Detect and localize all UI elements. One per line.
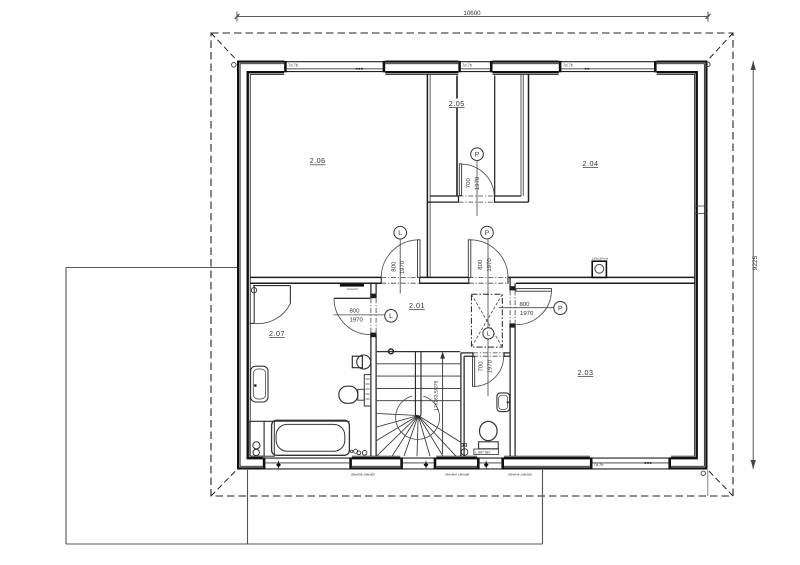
svg-text:L: L bbox=[398, 230, 402, 237]
svg-text:700: 700 bbox=[478, 361, 485, 372]
svg-text:7d.7b: 7d.7b bbox=[563, 62, 574, 67]
svg-text:800: 800 bbox=[391, 261, 398, 272]
svg-text:L: L bbox=[389, 313, 393, 320]
svg-text:800: 800 bbox=[520, 301, 531, 308]
svg-text:dřevěné zábradlí: dřevěné zábradlí bbox=[446, 473, 470, 477]
svg-text:7d.7b: 7d.7b bbox=[594, 462, 605, 467]
svg-text:9225: 9225 bbox=[752, 255, 759, 270]
svg-text:P: P bbox=[475, 152, 480, 159]
svg-text:700: 700 bbox=[465, 178, 472, 189]
svg-text:2.04: 2.04 bbox=[583, 159, 599, 168]
svg-text:800: 800 bbox=[350, 308, 361, 315]
svg-text:2.05: 2.05 bbox=[449, 99, 465, 108]
svg-text:dřevěné zábradlí: dřevěné zábradlí bbox=[351, 473, 375, 477]
svg-text:2.07: 2.07 bbox=[269, 329, 285, 338]
svg-text:10600: 10600 bbox=[463, 10, 481, 17]
svg-text:dřevěné zábradlí: dřevěné zábradlí bbox=[508, 473, 532, 477]
svg-text:1600x600: 1600x600 bbox=[347, 288, 359, 291]
svg-text:L 087 087: L 087 087 bbox=[476, 450, 491, 454]
svg-text:1970: 1970 bbox=[487, 359, 494, 373]
svg-text:2.06: 2.06 bbox=[310, 156, 326, 165]
svg-text:17x163,5/275: 17x163,5/275 bbox=[433, 380, 439, 411]
svg-text:140x140 mm: 140x140 mm bbox=[592, 257, 609, 261]
svg-text:P: P bbox=[558, 305, 563, 312]
svg-text:1970: 1970 bbox=[486, 258, 493, 272]
svg-text:1970: 1970 bbox=[474, 176, 481, 190]
svg-text:7d.7b: 7d.7b bbox=[462, 62, 473, 67]
svg-text:1970: 1970 bbox=[520, 310, 534, 317]
svg-text:1970: 1970 bbox=[350, 317, 364, 324]
svg-text:800: 800 bbox=[477, 259, 484, 270]
svg-text:1970: 1970 bbox=[399, 260, 406, 274]
svg-text:2.03: 2.03 bbox=[578, 368, 594, 377]
svg-text:7d.7b: 7d.7b bbox=[288, 62, 299, 67]
svg-text:P: P bbox=[485, 230, 490, 237]
svg-text:2.01: 2.01 bbox=[409, 301, 425, 310]
